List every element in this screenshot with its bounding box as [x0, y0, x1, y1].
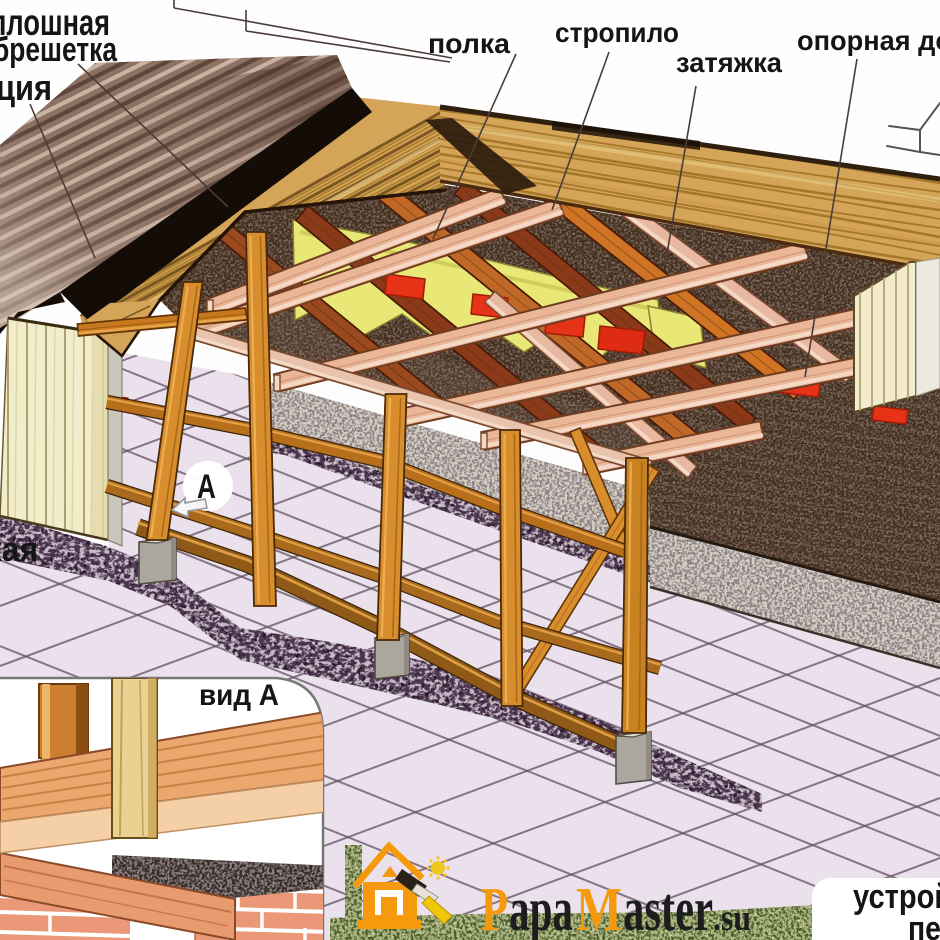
svg-text:P: P: [481, 876, 508, 940]
svg-text:M: M: [576, 876, 622, 940]
svg-text:затяжка: затяжка: [676, 48, 782, 79]
svg-text:apa: apa: [509, 876, 573, 940]
svg-text:aster: aster: [623, 876, 713, 940]
svg-text:стропило: стропило: [555, 18, 679, 49]
svg-text:полка: полка: [428, 29, 510, 60]
svg-text:вид А: вид А: [199, 680, 279, 712]
svg-text:опорная до: опорная до: [797, 26, 940, 57]
svg-text:пен: пен: [908, 909, 940, 940]
svg-text:кая: кая: [0, 530, 38, 568]
svg-text:.su: .su: [713, 898, 751, 939]
svg-text:ция: ция: [0, 67, 52, 108]
svg-text:брешетка: брешетка: [0, 30, 118, 68]
